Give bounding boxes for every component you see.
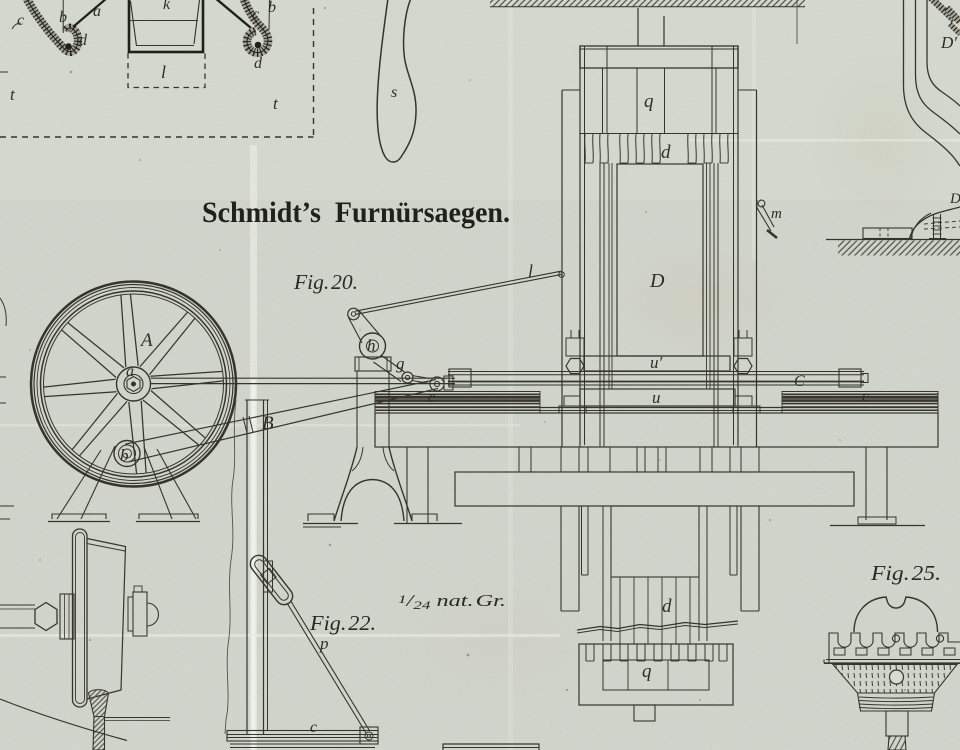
svg-text:l: l xyxy=(161,62,166,82)
svg-text:b: b xyxy=(268,0,276,16)
svg-text:Fig. 25.: Fig. 25. xyxy=(870,561,941,585)
svg-text:a: a xyxy=(93,3,101,20)
svg-text:l: l xyxy=(528,261,533,281)
svg-text:m: m xyxy=(771,206,782,222)
svg-text:c: c xyxy=(310,719,317,736)
svg-text:D′: D′ xyxy=(940,33,957,52)
svg-text:u: u xyxy=(652,388,661,407)
svg-text:d: d xyxy=(661,142,671,163)
svg-text:Schmidt’s Furnürsaegen.: Schmidt’s Furnürsaegen. xyxy=(202,196,510,229)
svg-text:b: b xyxy=(59,9,67,26)
svg-text:q: q xyxy=(644,91,654,112)
svg-text:d: d xyxy=(254,55,263,72)
svg-text:c: c xyxy=(862,388,869,405)
svg-text:c: c xyxy=(17,12,24,29)
svg-text:g: g xyxy=(396,354,405,373)
svg-text:p: p xyxy=(319,634,329,653)
svg-text:c: c xyxy=(428,389,435,406)
svg-text:c: c xyxy=(252,6,259,23)
svg-text:A: A xyxy=(139,330,153,351)
svg-text:s: s xyxy=(391,84,397,101)
svg-text:h: h xyxy=(367,336,376,355)
svg-text:C: C xyxy=(794,373,805,390)
svg-text:b: b xyxy=(120,446,129,465)
svg-text:D: D xyxy=(649,270,665,292)
svg-text:Fig. 22.: Fig. 22. xyxy=(309,611,376,635)
svg-text:Fig. 20.: Fig. 20. xyxy=(293,270,358,294)
svg-text:q: q xyxy=(642,661,652,682)
svg-text:d: d xyxy=(79,32,88,49)
svg-text:a: a xyxy=(126,363,134,380)
svg-text:D: D xyxy=(949,191,960,207)
svg-text:d: d xyxy=(662,596,672,617)
svg-text:k: k xyxy=(163,0,171,13)
svg-text:u′: u′ xyxy=(650,353,663,372)
